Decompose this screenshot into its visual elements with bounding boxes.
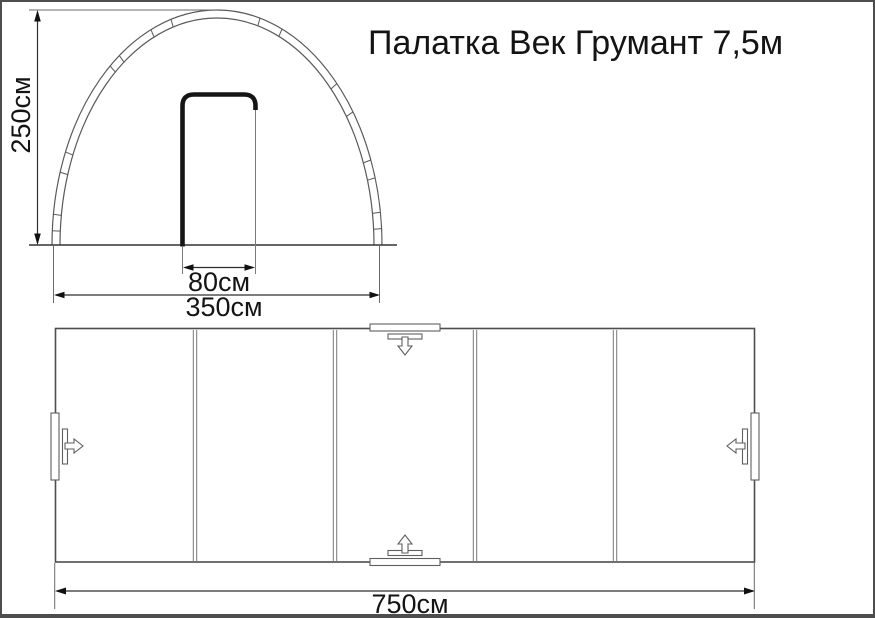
entrance-marker-bottom bbox=[370, 535, 440, 566]
length-dimension-label: 750см bbox=[371, 589, 448, 618]
arch-canopy bbox=[52, 10, 382, 245]
length-dimension: 750см bbox=[55, 563, 755, 618]
height-dimension: 250см bbox=[6, 10, 217, 245]
pole-joint-ticks bbox=[52, 18, 381, 231]
base-width-dimension-label: 350см bbox=[185, 292, 262, 322]
entrance-marker-left bbox=[51, 413, 83, 480]
entrance-marker-top bbox=[370, 324, 440, 355]
entrance-marker-right bbox=[727, 413, 759, 480]
floor-outline bbox=[56, 329, 755, 563]
door-opening bbox=[183, 95, 256, 275]
height-dimension-label: 250см bbox=[6, 76, 36, 153]
product-diagram-page: Палатка Век Грумант 7,5м bbox=[0, 0, 875, 618]
front-view: 250см 80см 350см bbox=[6, 10, 397, 322]
section-dividers bbox=[193, 330, 616, 561]
tent-diagram: 250см 80см 350см bbox=[2, 2, 875, 618]
plan-view: 750см bbox=[51, 324, 759, 618]
arrow-down-icon bbox=[398, 337, 412, 355]
